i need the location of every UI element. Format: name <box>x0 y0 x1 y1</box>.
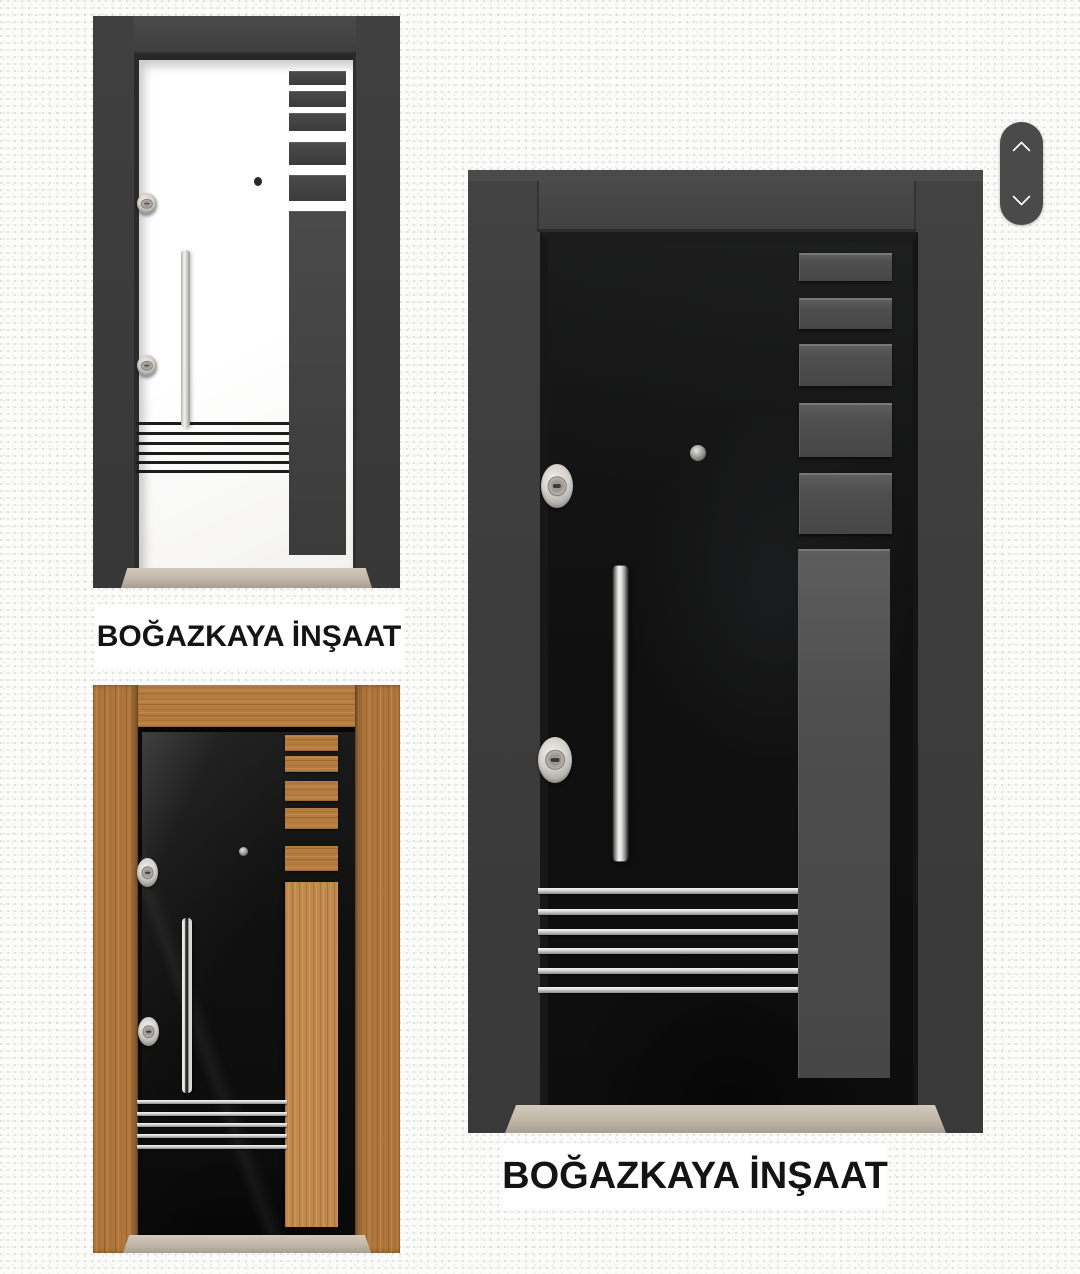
accent-slat <box>285 735 338 751</box>
accent-slat <box>285 846 338 871</box>
lock-cylinder <box>138 1017 159 1046</box>
bottom-stripe <box>136 432 289 435</box>
lock-cylinder <box>137 858 158 887</box>
accent-slat <box>799 403 892 457</box>
chevron-up-icon <box>1012 141 1030 159</box>
lock-cylinder <box>541 464 573 508</box>
accent-slat <box>285 781 338 801</box>
accent-column <box>798 549 890 1078</box>
bottom-stripe <box>136 442 289 445</box>
accent-slat <box>289 91 346 107</box>
bottom-stripe <box>137 1100 287 1104</box>
bottom-stripe <box>137 1134 287 1138</box>
door-sill <box>505 1105 946 1133</box>
caption-text: BOĞAZKAYA İNŞAAT <box>502 1155 888 1198</box>
door-frame-jamb <box>93 685 138 1253</box>
door-frame-lintel <box>537 181 916 232</box>
caption-text: BOĞAZKAYA İNŞAAT <box>97 620 401 654</box>
accent-slat <box>285 756 338 772</box>
product-image-white-door[interactable] <box>93 16 400 588</box>
accent-column <box>285 882 338 1227</box>
caption-black-door: BOĞAZKAYA İNŞAAT <box>503 1144 887 1208</box>
accent-slat <box>289 113 346 131</box>
catalog-page: BOĞAZKAYA İNŞAAT <box>0 0 1080 1274</box>
door-handle <box>612 565 629 862</box>
product-image-wooden-door[interactable] <box>93 685 400 1253</box>
bottom-stripe <box>538 987 798 993</box>
accent-slat <box>289 142 346 165</box>
bottom-stripe <box>136 452 289 455</box>
accent-slat <box>799 344 892 386</box>
peephole <box>254 177 262 186</box>
accent-slat <box>799 298 892 329</box>
bottom-stripe <box>137 1123 287 1127</box>
bottom-stripe <box>538 888 798 894</box>
bottom-stripe <box>538 929 798 935</box>
bottom-stripe <box>136 422 289 425</box>
bottom-stripe <box>136 470 289 473</box>
lock-cylinder <box>538 737 572 783</box>
lock-cylinder <box>137 193 157 214</box>
caption-white-door: BOĞAZKAYA İNŞAAT <box>95 606 403 667</box>
accent-slat <box>799 473 892 534</box>
door-frame-top <box>468 170 983 181</box>
lock-cylinder <box>137 355 157 376</box>
gallery-scroll-control <box>1000 122 1043 225</box>
peephole <box>239 847 248 856</box>
door-handle <box>182 918 192 1093</box>
chevron-down-icon <box>1012 187 1030 205</box>
accent-slat <box>799 253 892 281</box>
accent-slat <box>289 71 346 85</box>
door-frame-lintel <box>93 685 400 727</box>
scroll-up-button[interactable] <box>1000 122 1043 174</box>
bottom-stripe <box>137 1145 287 1149</box>
bottom-stripe <box>538 948 798 954</box>
peephole <box>690 445 706 461</box>
accent-slat <box>289 175 346 201</box>
door-sill <box>123 1235 371 1253</box>
bottom-stripe <box>136 461 289 464</box>
scroll-down-button[interactable] <box>1000 174 1043 226</box>
door-handle <box>181 250 190 428</box>
bottom-stripe <box>137 1112 287 1116</box>
door-sill <box>121 568 372 588</box>
door-frame-jamb <box>355 685 400 1253</box>
bottom-stripe <box>538 968 798 974</box>
door-frame-lintel <box>134 16 356 54</box>
bottom-stripe <box>538 909 798 915</box>
accent-column <box>289 211 346 555</box>
product-image-black-door[interactable] <box>468 170 983 1133</box>
accent-slat <box>285 808 338 829</box>
